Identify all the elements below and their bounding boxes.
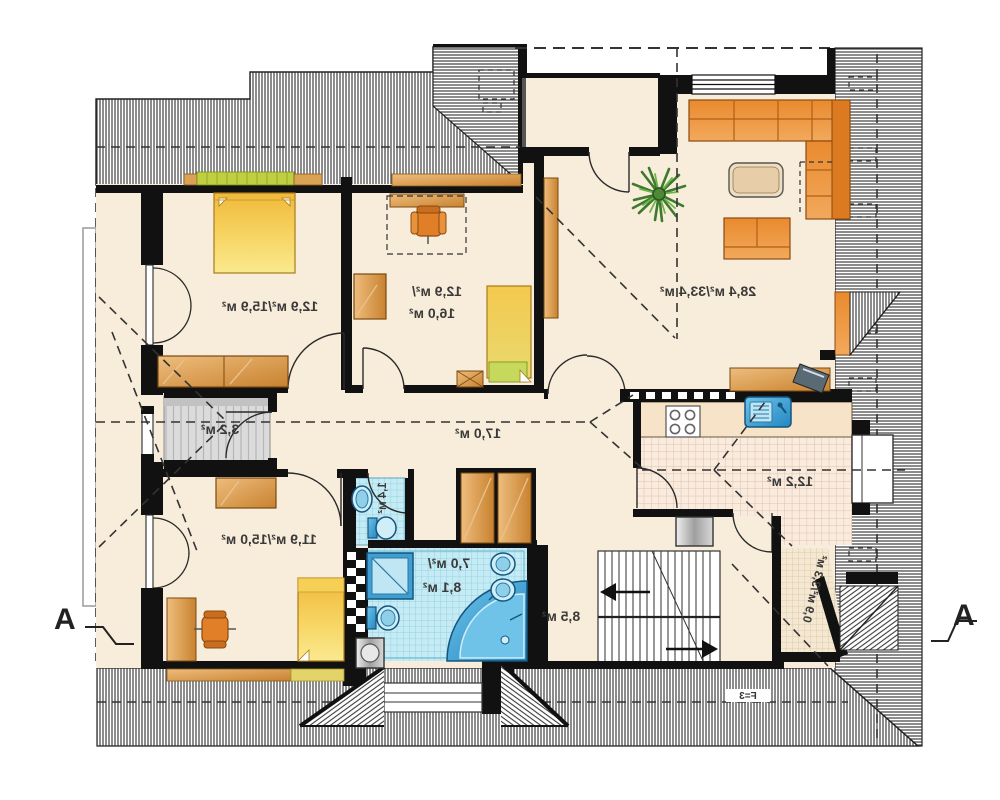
svg-text:12,9 м²/15,9 м²: 12,9 м²/15,9 м²	[222, 298, 319, 314]
svg-text:16,0 м²: 16,0 м²	[409, 305, 455, 321]
svg-text:3,2 м²: 3,2 м²	[200, 421, 239, 437]
svg-text:8,5 м²: 8,5 м²	[541, 608, 580, 624]
svg-text:11,9 м²/15,0 м²: 11,9 м²/15,0 м²	[221, 531, 317, 547]
svg-text:28,4 м²/33,4 м²: 28,4 м²/33,4 м²	[660, 283, 757, 299]
svg-text:A: A	[953, 599, 975, 632]
svg-text:7,0 м²/: 7,0 м²/	[428, 555, 470, 571]
svg-text:F=3: F=3	[739, 691, 757, 702]
svg-text:12,2 м²: 12,2 м²	[767, 473, 813, 489]
svg-text:8,1 м²: 8,1 м²	[422, 579, 461, 595]
svg-text:17,0 м²: 17,0 м²	[455, 425, 501, 441]
svg-text:1,4 м²: 1,4 м²	[377, 482, 389, 514]
svg-text:12,9 м²/: 12,9 м²/	[412, 283, 462, 299]
svg-text:A: A	[54, 603, 76, 636]
